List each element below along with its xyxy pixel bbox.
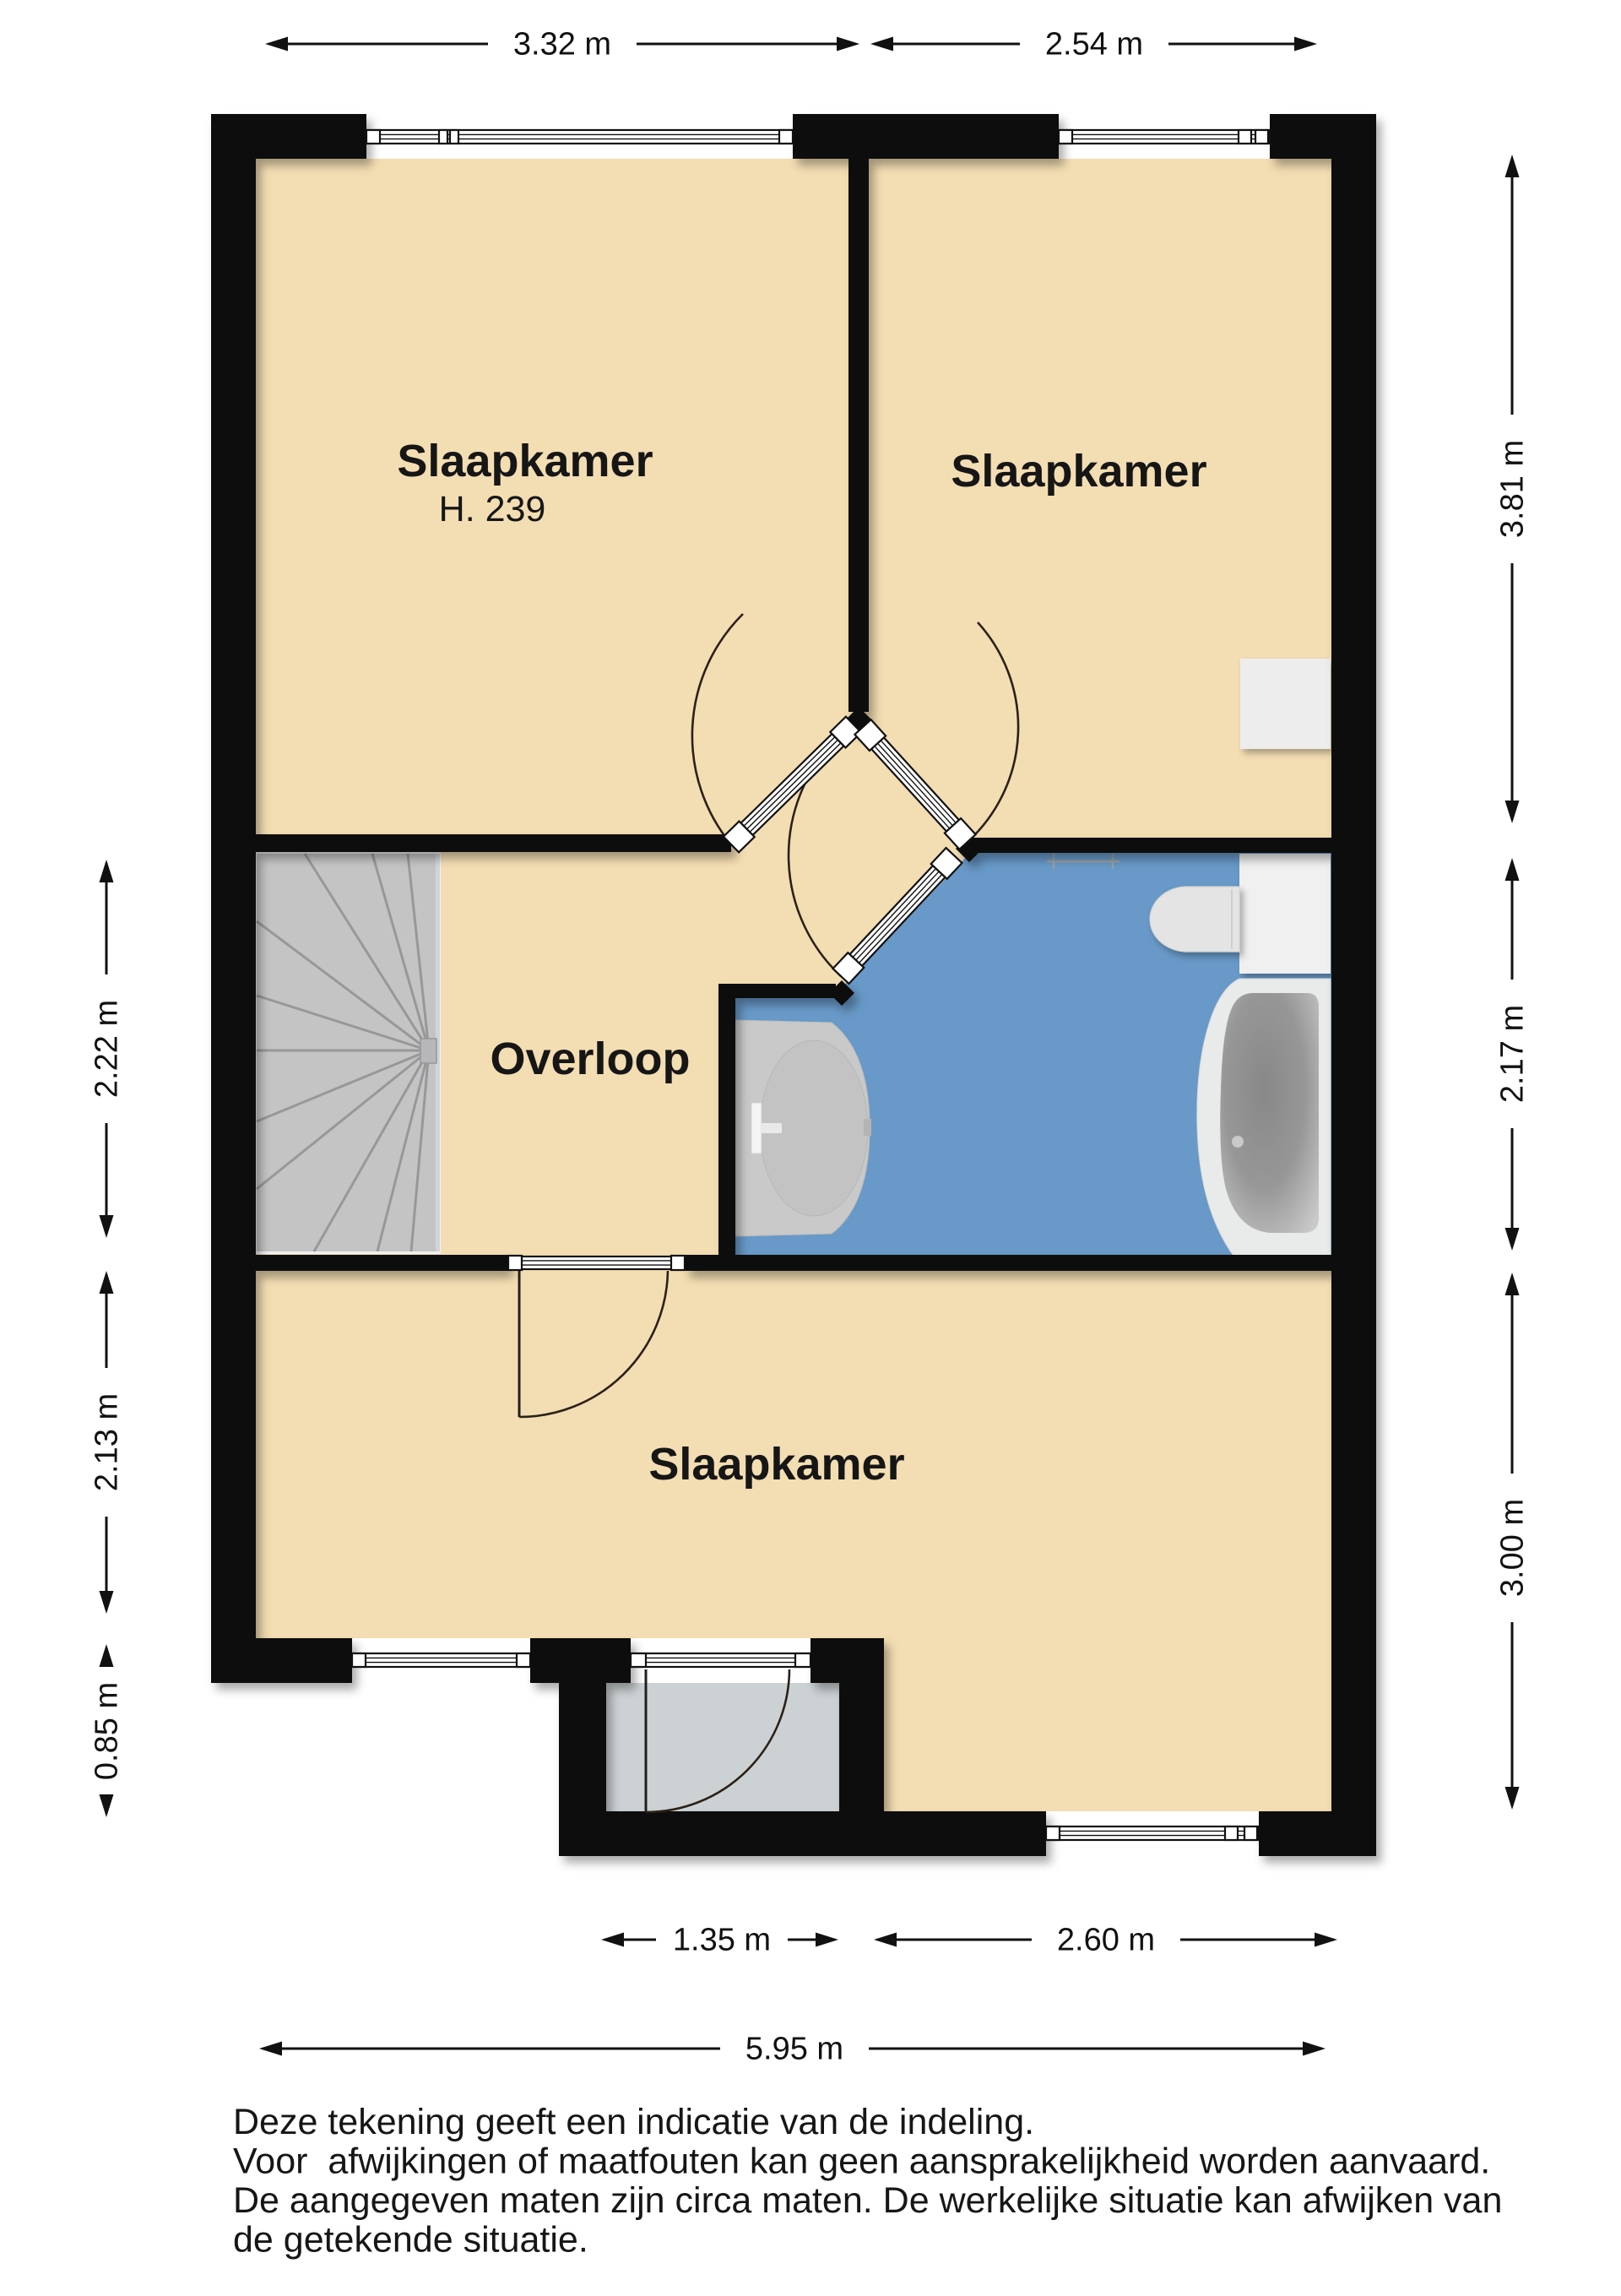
svg-text:2.13 m: 2.13 m [89, 1393, 125, 1491]
svg-text:de getekende situatie.: de getekende situatie. [233, 2220, 588, 2261]
svg-text:Slaapkamer: Slaapkamer [397, 436, 653, 486]
svg-text:Voor afwijkingen of maatfoute: Voor afwijkingen of maatfouten kan geen … [233, 2141, 1490, 2182]
svg-text:1.35 m: 1.35 m [673, 1923, 771, 1958]
svg-text:Overloop: Overloop [490, 1034, 690, 1084]
svg-text:De aangegeven maten zijn circa: De aangegeven maten zijn circa maten. De… [233, 2180, 1502, 2221]
svg-text:2.60 m: 2.60 m [1057, 1923, 1155, 1958]
svg-text:2.54 m: 2.54 m [1045, 27, 1143, 62]
svg-text:H. 239: H. 239 [439, 489, 546, 529]
svg-text:0.85 m: 0.85 m [89, 1682, 125, 1780]
svg-text:Slaapkamer: Slaapkamer [951, 446, 1206, 497]
svg-text:3.81 m: 3.81 m [1495, 440, 1531, 538]
svg-text:2.17 m: 2.17 m [1495, 1005, 1531, 1103]
svg-text:3.00 m: 3.00 m [1495, 1499, 1531, 1597]
svg-text:3.32 m: 3.32 m [513, 27, 611, 62]
svg-text:Deze tekening geeft een indica: Deze tekening geeft een indicatie van de… [233, 2102, 1034, 2142]
svg-text:Slaapkamer: Slaapkamer [648, 1439, 904, 1490]
svg-text:5.95 m: 5.95 m [745, 2032, 843, 2067]
svg-text:2.22 m: 2.22 m [89, 1000, 125, 1098]
